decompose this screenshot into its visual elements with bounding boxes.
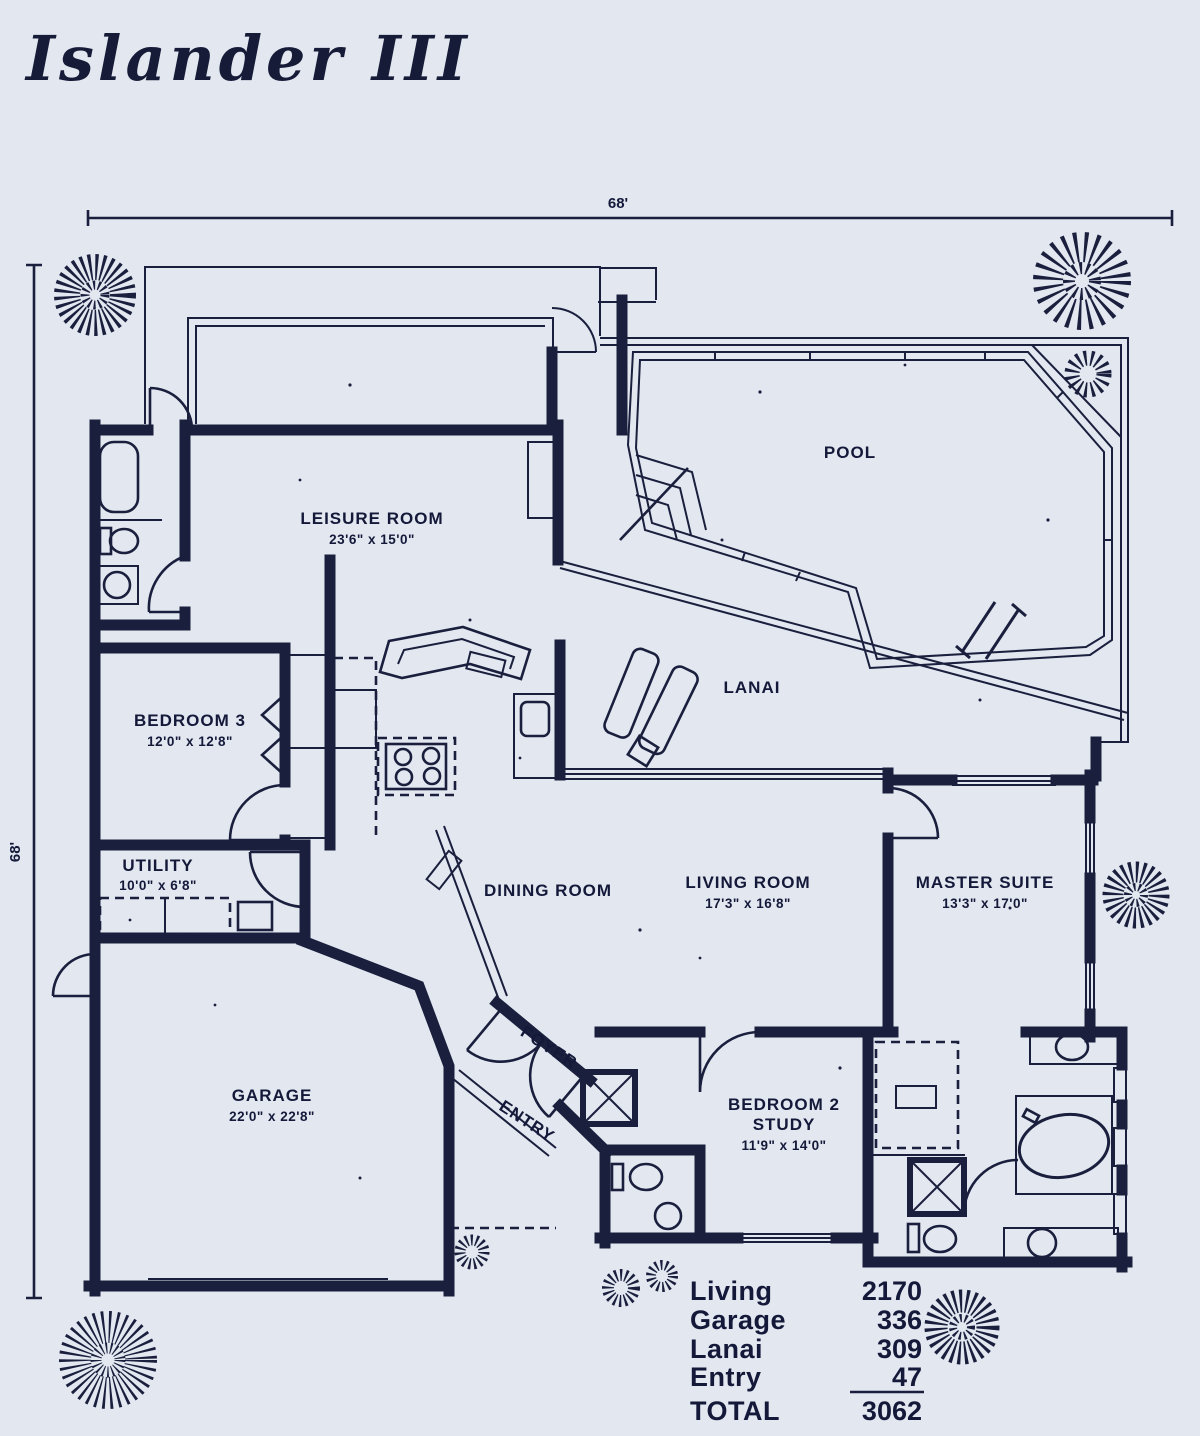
kitchen [334, 627, 558, 840]
master-bath [868, 1030, 1118, 1258]
exterior-walls [89, 425, 1127, 1291]
toilet [100, 528, 138, 554]
bedroom2-label: BEDROOM 2 [728, 1095, 840, 1114]
master-suite-label: MASTER SUITE [916, 873, 1055, 892]
pool-enclosure [556, 338, 1128, 776]
area-row-label: Entry [690, 1362, 762, 1392]
bedroom2-label2: STUDY [753, 1115, 816, 1134]
area-row-value: 47 [892, 1362, 922, 1392]
entry-column [583, 1072, 635, 1124]
area-table: Living 2170 Garage 336 Lanai 309 Entry 4… [690, 1276, 924, 1426]
dining-room-label: DINING ROOM [484, 881, 612, 900]
area-total-label: TOTAL [690, 1396, 780, 1426]
tree-icon [936, 1301, 988, 1353]
area-row-value: 309 [877, 1334, 922, 1364]
scan-speckles [129, 364, 1050, 1180]
area-row-label: Lanai [690, 1334, 763, 1364]
shower [910, 1160, 964, 1214]
garage-label: GARAGE [232, 1086, 313, 1105]
garage-dims: 22'0" x 22'8" [229, 1109, 315, 1124]
area-total-value: 3062 [862, 1396, 922, 1426]
bathtub [100, 442, 138, 512]
pool-outline: POOL [620, 352, 1112, 668]
area-row-value: 336 [877, 1305, 922, 1335]
bedroom3-dims: 12'0" x 12'8" [147, 734, 233, 749]
floor-plan-page: Islander III 68' 68' [0, 0, 1200, 1436]
left-dimension-line: 68' [7, 265, 42, 1298]
media-niche [528, 442, 556, 518]
utility-appliances [100, 898, 272, 934]
utility-label: UTILITY [122, 856, 193, 875]
small-palm-icon [1072, 358, 1104, 390]
vanity-bottom [1004, 1228, 1118, 1258]
refrigerator [334, 690, 376, 748]
area-row-label: Living [690, 1276, 773, 1306]
living-room-label: LIVING ROOM [685, 873, 810, 892]
top-dimension-line: 68' [88, 195, 1172, 226]
foyer-label: FOYER [517, 1022, 581, 1073]
top-dimension-label: 68' [608, 195, 628, 212]
tree-icon [1113, 872, 1159, 918]
lanai-label: LANAI [724, 678, 781, 697]
bedroom2-dims: 11'9" x 14'0" [741, 1138, 826, 1153]
powder-room [612, 1164, 681, 1229]
area-row-value: 2170 [862, 1276, 922, 1306]
shrub-icon [460, 1240, 673, 1301]
kitchen-island [380, 627, 530, 679]
kitchen-sink-counter [514, 694, 558, 778]
leisure-room-dims: 23'6" x 15'0" [329, 532, 415, 547]
dining-partition [427, 826, 507, 1000]
floor-plan-drawing: 68' 68' [0, 0, 1200, 1436]
cabana-walls [552, 268, 656, 430]
bathtub [1014, 1096, 1113, 1194]
cooktop [378, 738, 455, 795]
area-row-label: Garage [690, 1305, 786, 1335]
master-suite-dims: 13'3" x 17'0" [942, 896, 1028, 911]
pool-label: POOL [824, 443, 876, 462]
left-dimension-label: 68' [7, 842, 24, 862]
sink [98, 566, 138, 604]
lanai-chairs [602, 646, 700, 766]
bedroom3-closet [262, 560, 330, 845]
toilet [908, 1224, 956, 1252]
tree-icon [67, 267, 123, 323]
palm-tree-icon [1048, 247, 1116, 315]
toilet [612, 1164, 662, 1190]
utility-dims: 10'0" x 6'8" [119, 878, 197, 893]
starburst-tree-icon [75, 1327, 141, 1393]
living-room-dims: 17'3" x 16'8" [705, 896, 791, 911]
hall-bathroom [95, 442, 162, 604]
sink [655, 1203, 681, 1229]
patio-outline [145, 267, 600, 424]
room-labels: LEISURE ROOM 23'6" x 15'0" BEDROOM 3 12'… [119, 509, 1054, 1153]
leisure-room-label: LEISURE ROOM [300, 509, 443, 528]
walk-in-closet [868, 1042, 965, 1155]
bedroom3-label: BEDROOM 3 [134, 711, 246, 730]
